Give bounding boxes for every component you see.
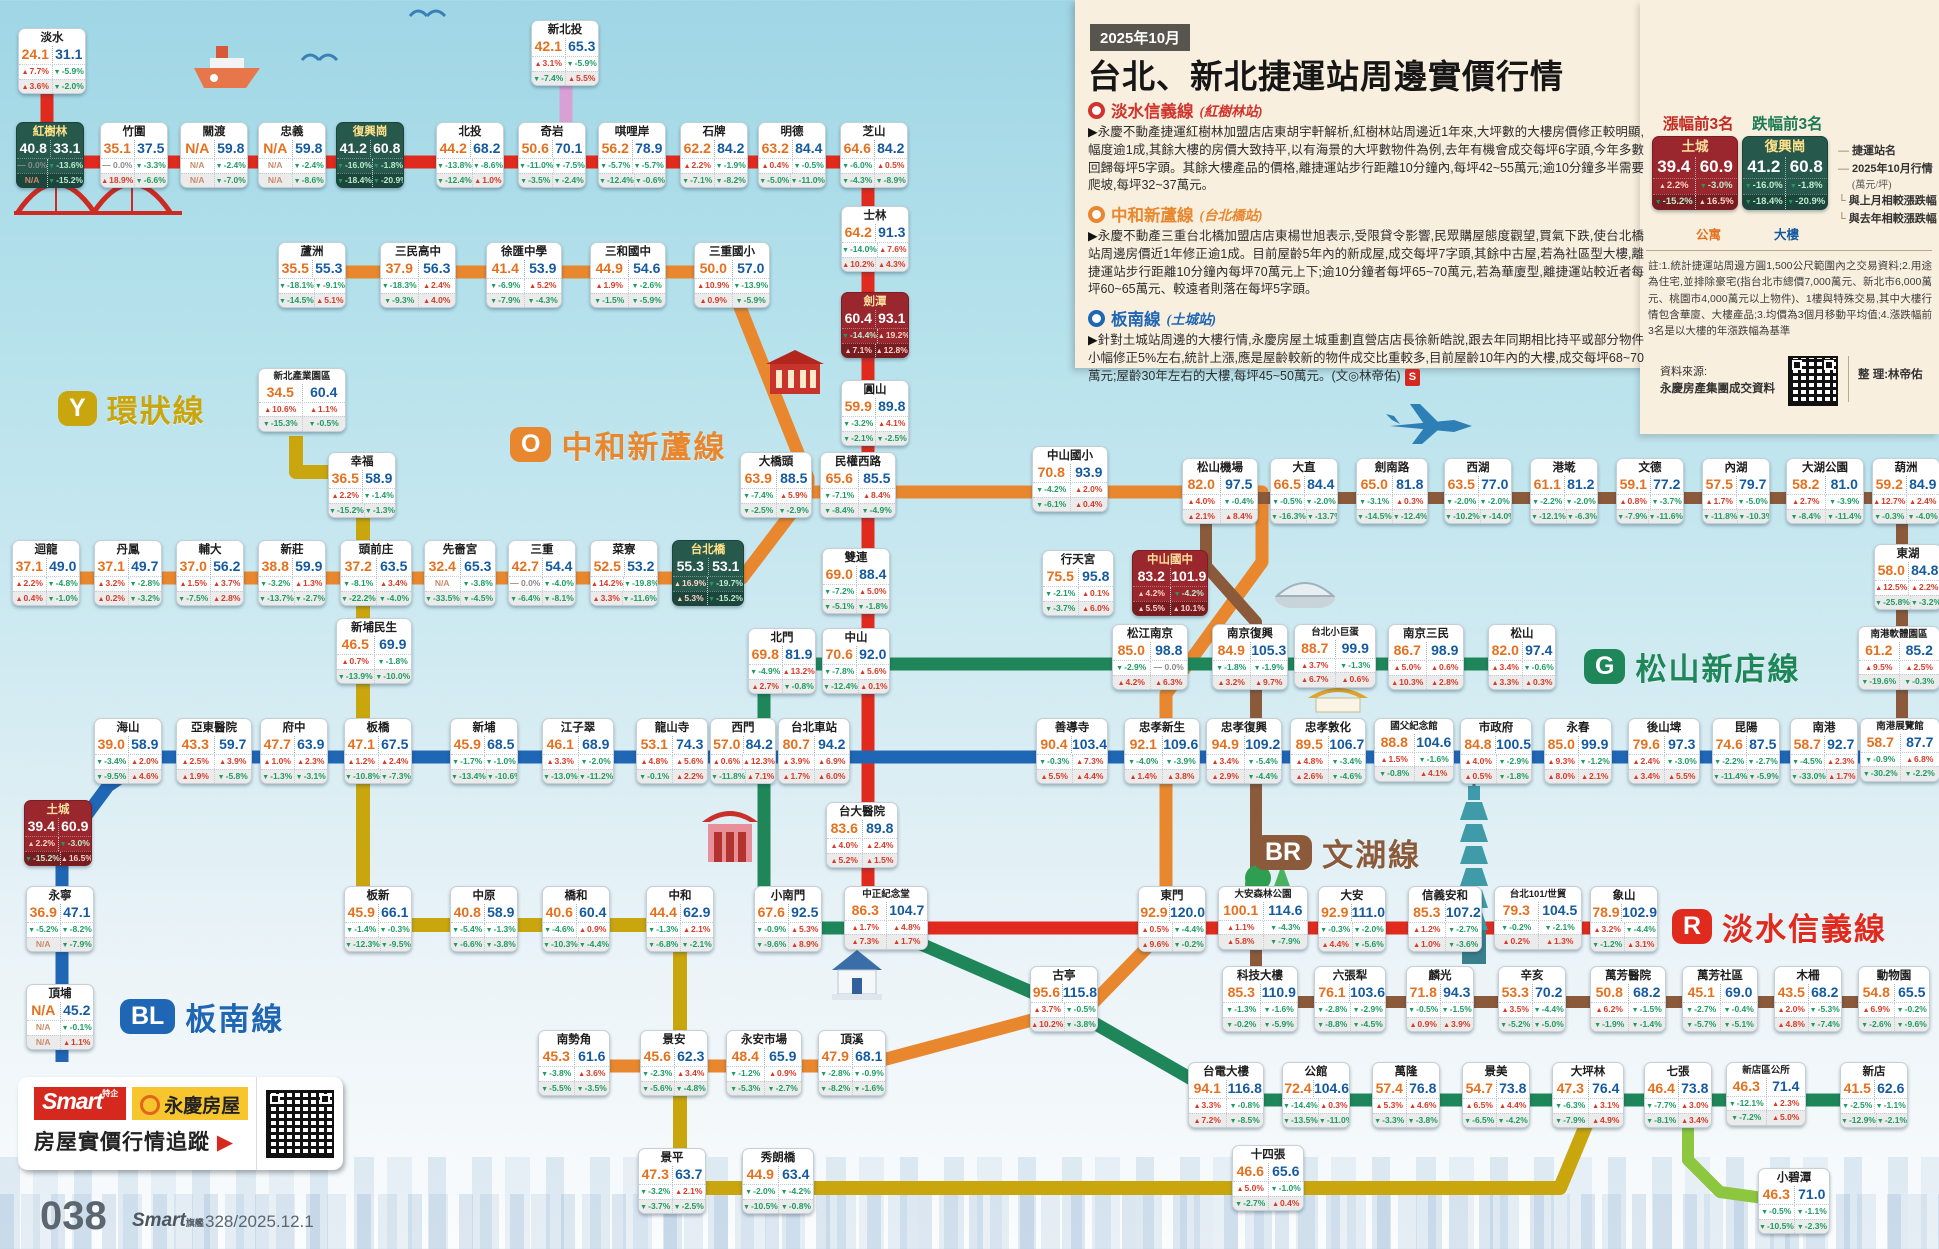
up-arrow-icon: ▲ [1413,927,1420,934]
station-萬隆: 萬隆57.476.8▲5.3%▲4.6%▼-3.3%▼-3.8% [1372,1062,1440,1128]
up-arrow-icon: ▲ [1906,665,1913,672]
down-arrow-icon: ▼ [1534,1007,1541,1014]
up-arrow-icon: ▲ [22,84,29,91]
down-arrow-icon: ▼ [1592,942,1599,949]
up-arrow-icon: ▲ [579,927,586,934]
station-景安: 景安45.662.3▼-2.3%▲3.4%▼-5.6%▼-4.8% [640,1030,708,1096]
up-arrow-icon: ▲ [1075,487,1082,494]
station-南港軟體園區: 南港軟體園區61.285.2▲9.5%▲2.5%▼-19.6%▼-0.3% [1858,626,1939,690]
section-zhonghe-xinlu: 中和新蘆線 (台北橋站) ▶永慶不動產三重台北橋加盟店店東楊世旭表示,受限貸令影… [1088,202,1644,299]
down-arrow-icon: ▼ [642,1086,649,1093]
down-arrow-icon: ▼ [842,333,849,340]
down-arrow-icon: ▼ [437,178,444,185]
up-arrow-icon: ▲ [1443,1022,1450,1029]
down-arrow-icon: ▼ [1264,1007,1271,1014]
up-arrow-icon: ▲ [842,262,849,269]
station-昆陽: 昆陽74.687.5▼-2.2%▼-2.7%▼-11.4%▼-5.9% [1712,718,1780,784]
down-arrow-icon: ▼ [486,759,493,766]
up-arrow-icon: ▲ [743,759,750,766]
down-arrow-icon: ▼ [555,163,562,170]
up-arrow-icon: ▲ [63,1040,70,1047]
down-arrow-icon: ▼ [451,774,458,781]
station-中山: 中山70.692.0▼-7.8%▲5.6%▼-12.4%▲0.1% [822,628,890,694]
station-動物園: 動物園54.865.5▲6.9%▼-0.2%▼-2.6%▼-9.6% [1858,966,1930,1032]
up-arrow-icon: ▲ [1227,939,1234,946]
sun-yat-sen-hall-icon [1306,684,1370,716]
down-arrow-icon: ▼ [1224,499,1231,506]
down-arrow-icon: ▼ [791,178,798,185]
up-arrow-icon: ▲ [1394,665,1401,672]
up-arrow-icon: ▲ [1376,1103,1383,1110]
station-葫洲: 葫洲59.284.9▲12.7%▲2.4%▼-0.3%▼-4.0% [1872,458,1939,524]
down-arrow-icon: ▼ [1498,1118,1505,1125]
line-badge-R: R [1672,909,1712,944]
station-中原: 中原40.858.9▼-5.4%▼-1.3%▼-6.6%▼-3.8% [450,886,518,952]
station-信義安和: 信義安和85.3107.2▲1.2%▼-2.7%▲1.0%▼-3.6% [1408,886,1482,952]
up-arrow-icon: ▲ [752,684,759,691]
station-東湖: 東湖58.084.8▲12.5%▲2.2%▼-25.8%▼-3.2% [1874,544,1939,610]
up-arrow-icon: ▲ [1909,499,1916,506]
up-arrow-icon: ▲ [1082,591,1089,598]
taipei-arena-icon [1272,568,1338,608]
arrow-icon: ▶ [217,1131,234,1154]
down-arrow-icon: ▼ [1306,499,1313,506]
down-arrow-icon: ▼ [1216,665,1223,672]
up-arrow-icon: ▲ [1322,942,1329,949]
down-arrow-icon: ▼ [1686,1022,1693,1029]
down-arrow-icon: ▼ [384,298,391,305]
down-arrow-icon: ▼ [1045,591,1052,598]
station-六張犁: 六張犁76.1103.6▼-2.8%▼-2.9%▼-8.8%▼-4.5% [1314,966,1386,1032]
up-arrow-icon: ▲ [264,759,271,766]
up-arrow-icon: ▲ [1681,1103,1688,1110]
down-arrow-icon: ▼ [1738,499,1745,506]
down-arrow-icon: ▼ [1703,514,1710,521]
station-南京復興: 南京復興84.9105.3▼-1.8%▼-1.9%▲3.2%▲9.7% [1212,624,1288,690]
down-arrow-icon: ▼ [1354,927,1361,934]
station-萬芳社區: 萬芳社區45.169.0▼-2.7%▼-0.4%▼-5.7%▼-5.1% [1682,966,1758,1032]
down-arrow-icon: ▼ [1566,499,1573,506]
station-景美: 景美54.773.8▲6.5%▲4.4%▼-6.5%▼-4.2% [1462,1062,1530,1128]
up-arrow-icon: ▲ [878,421,885,428]
down-arrow-icon: ▼ [510,596,517,603]
down-arrow-icon: ▼ [708,581,715,588]
up-arrow-icon: ▲ [591,581,598,588]
up-arrow-icon: ▲ [1633,759,1640,766]
station-十四張: 十四張46.665.6▲5.0%▼-1.0%▼-2.7%▲0.4% [1232,1145,1304,1211]
station-南港: 南港58.792.7▼-4.5%▲2.3%▼-33.0%▲1.7% [1790,718,1858,784]
legend-apartment: 公寓 [1696,224,1721,243]
down-arrow-icon: ▼ [623,596,630,603]
station-忠孝新生: 忠孝新生92.1109.6▼-4.0%▼-3.9%▲1.4%▲3.8% [1124,718,1200,784]
up-arrow-icon: ▲ [1212,774,1219,781]
down-arrow-icon: ▼ [711,774,718,781]
station-三民高中: 三民高中37.956.3▼-18.3%▲2.4%▼-9.3%▲4.0% [380,242,456,308]
down-arrow-icon: ▼ [648,942,655,949]
down-arrow-icon: ▼ [373,163,380,170]
down-arrow-icon: ▼ [1271,1186,1278,1193]
line-badge-G: G [1584,649,1625,684]
up-arrow-icon: ▲ [1212,759,1219,766]
station-台電大樓: 台電大樓94.1116.8▲3.3%▼-0.8%▲7.2%▼-8.5% [1188,1062,1264,1128]
down-arrow-icon: ▼ [784,684,791,691]
up-arrow-icon: ▲ [1706,499,1713,506]
up-arrow-icon: ▲ [1627,942,1634,949]
down-arrow-icon: ▼ [736,298,743,305]
station-中山國小: 中山國小70.893.9▼-4.2%▲2.0%▼-6.1%▲0.4% [1032,446,1108,512]
up-arrow-icon: ▲ [780,493,787,500]
down-arrow-icon: ▼ [1442,1007,1449,1014]
down-arrow-icon: ▼ [1646,1118,1653,1125]
footer-brand: Smart旗艦 [132,1210,204,1232]
down-arrow-icon: ▼ [544,927,551,934]
up-arrow-icon: ▲ [893,939,900,946]
down-arrow-icon: ▼ [294,163,301,170]
down-arrow-icon: ▼ [1248,774,1255,781]
up-arrow-icon: ▲ [1076,759,1083,766]
down-arrow-icon: ▼ [48,581,55,588]
station-頭前庄: 頭前庄37.263.5▼-8.1%▲3.4%▼-22.2%▼-4.0% [340,540,412,606]
station-板新: 板新45.966.1▼-1.4%▼-0.3%▼-12.3%▼-9.5% [344,886,412,952]
down-arrow-icon: ▼ [1379,771,1386,778]
legend-price: —2025年10月行情 [1838,160,1933,176]
up-arrow-icon: ▲ [568,76,575,83]
down-arrow-icon: ▼ [1861,679,1868,686]
down-arrow-icon: ▼ [1842,1103,1849,1110]
station-三重國小: 三重國小50.057.0▲10.9%▼-13.9%▲0.9%▼-5.9% [694,242,770,308]
down-arrow-icon: ▼ [1724,1007,1731,1014]
station-橋和: 橋和40.660.4▼-4.6%▲0.9%▼-10.3%▼-4.4% [542,886,610,952]
down-arrow-icon: ▼ [577,1086,584,1093]
up-arrow-icon: ▲ [1863,1007,1870,1014]
up-arrow-icon: ▲ [380,581,387,588]
down-arrow-icon: ▼ [28,927,35,934]
down-arrow-icon: ▼ [1248,759,1255,766]
down-arrow-icon: ▼ [745,1189,752,1196]
qr-code [1788,356,1838,406]
up-arrow-icon: ▲ [98,581,105,588]
down-arrow-icon: ▼ [60,841,67,848]
up-arrow-icon: ▲ [1525,680,1532,687]
down-arrow-icon: ▼ [824,589,831,596]
up-arrow-icon: ▲ [535,61,542,68]
up-arrow-icon: ▲ [1142,927,1149,934]
date-badge: 2025年10月 [1090,24,1190,51]
down-arrow-icon: ▼ [1791,774,1798,781]
cks-memorial-icon [824,948,890,1006]
down-arrow-icon: ▼ [1897,1007,1904,1014]
down-arrow-icon: ▼ [130,596,137,603]
up-arrow-icon: ▲ [1391,680,1398,687]
down-arrow-icon: ▼ [337,178,344,185]
station-奇岩: 奇岩50.670.1▼-11.0%▼-7.5%▼-3.5%▼-2.4% [518,122,586,188]
down-arrow-icon: ▼ [640,1189,647,1196]
down-arrow-icon: ▼ [96,774,103,781]
down-arrow-icon: ▼ [1166,759,1173,766]
down-arrow-icon: ▼ [543,774,550,781]
down-arrow-icon: ▼ [632,283,639,290]
station-三重: 三重42.754.4— 0.0%▼-4.0%▼-6.4%▼-8.1% [508,540,576,606]
down-arrow-icon: ▼ [1724,1022,1731,1029]
up-arrow-icon: ▲ [1194,1103,1201,1110]
station-府中: 府中47.763.9▲1.0%▲2.3%▼-1.3%▼-3.1% [260,718,328,784]
down-arrow-icon: ▼ [463,596,470,603]
station-永安市場: 永安市場48.465.9▼-1.2%▲0.9%▼-5.3%▼-2.7% [726,1030,802,1096]
down-arrow-icon: ▼ [579,774,586,781]
down-arrow-icon: ▼ [1580,759,1587,766]
down-arrow-icon: ▼ [794,163,801,170]
station-紅樹林: 紅樹林40.833.1— 0.0%▼-13.6%N/A▼-15.2% [16,122,84,188]
up-arrow-icon: ▲ [474,178,481,185]
down-arrow-icon: ▼ [1226,1007,1233,1014]
up-arrow-icon: ▲ [1865,665,1872,672]
up-arrow-icon: ▲ [852,925,859,932]
station-大坪林: 大坪林47.376.4▼-6.3%▲3.1%▼-7.9%▲4.9% [1552,1062,1624,1128]
down-arrow-icon: ▼ [1524,665,1531,672]
up-arrow-icon: ▲ [295,581,302,588]
up-arrow-icon: ▲ [423,298,430,305]
up-arrow-icon: ▲ [747,774,754,781]
down-arrow-icon: ▼ [743,1204,750,1211]
station-蘆洲: 蘆洲35.555.3▼-18.1%▼-9.1%▼-14.5%▲5.1% [278,242,346,308]
yungching-logo: 永慶房屋 [132,1087,248,1120]
up-arrow-icon: ▲ [180,581,187,588]
up-arrow-icon: ▲ [1301,663,1308,670]
down-arrow-icon: ▼ [381,774,388,781]
promo-qr-code [266,1090,334,1158]
station-北投: 北投44.268.2▼-13.8%▼-8.6%▼-12.4%▲1.0% [436,122,504,188]
line-label-BL: BL板南線 [120,994,284,1039]
up-arrow-icon: ▲ [1237,1186,1244,1193]
down-arrow-icon: ▼ [640,1204,647,1211]
station-頂溪: 頂溪47.968.1▼-2.8%▼-0.9%▼-8.2%▼-1.6% [818,1030,886,1096]
up-arrow-icon: ▲ [1502,1007,1509,1014]
footnote: 註:1.統計捷運站周邊方圓1,500公尺範圍內之交易資料;2.用途為住宅,並排除… [1648,258,1932,339]
up-arrow-icon: ▲ [1633,774,1640,781]
down-arrow-icon: ▼ [452,927,459,934]
down-arrow-icon: ▼ [338,674,345,681]
down-arrow-icon: ▼ [1713,774,1720,781]
down-arrow-icon: ▼ [1230,1118,1237,1125]
down-arrow-icon: ▼ [1036,502,1043,509]
down-arrow-icon: ▼ [1499,759,1506,766]
down-arrow-icon: ▼ [1039,759,1046,766]
down-arrow-icon: ▼ [733,283,740,290]
down-arrow-icon: ▼ [1729,1101,1736,1108]
down-arrow-icon: ▼ [820,1086,827,1093]
bird-icon [300,48,340,64]
up-arrow-icon: ▲ [1668,774,1675,781]
down-arrow-icon: ▼ [779,508,786,515]
down-arrow-icon: ▼ [743,493,750,500]
up-arrow-icon: ▲ [684,163,691,170]
legend-month-change: └與上月相較漲跌幅 [1838,192,1937,208]
line-label-Y: Y環狀線 [58,386,206,431]
down-arrow-icon: ▼ [520,178,527,185]
up-arrow-icon: ▲ [529,283,536,290]
down-arrow-icon: ▼ [1877,1118,1884,1125]
down-arrow-icon: ▼ [1501,925,1508,932]
down-arrow-icon: ▼ [1759,1224,1766,1231]
down-arrow-icon: ▼ [1317,1022,1324,1029]
down-arrow-icon: ▼ [1353,1007,1360,1014]
down-arrow-icon: ▼ [382,283,389,290]
down-arrow-icon: ▼ [1464,1118,1471,1125]
editor-credit: 整 理:林帝佑 [1858,366,1923,382]
down-arrow-icon: ▼ [315,283,322,290]
up-arrow-icon: ▲ [762,163,769,170]
legend-station-name: —捷運站名 [1838,142,1896,158]
up-arrow-icon: ▲ [1075,502,1082,509]
station-劍潭: 劍潭60.493.1▼-14.4%▲19.2%▲7.1%▲12.8% [841,292,909,358]
down-arrow-icon: ▼ [1745,183,1752,190]
down-arrow-icon: ▼ [1235,1201,1242,1208]
down-arrow-icon: ▼ [345,942,352,949]
up-arrow-icon: ▲ [1592,1118,1599,1125]
line-bullet-icon [1088,206,1105,223]
down-arrow-icon: ▼ [380,927,387,934]
down-arrow-icon: ▼ [130,581,137,588]
up-arrow-icon: ▲ [1466,1103,1473,1110]
down-arrow-icon: ▼ [1731,1115,1738,1122]
down-arrow-icon: ▼ [648,927,655,934]
station-西湖: 西湖63.577.0▼-2.0%▼-2.0%▼-10.2%▼-14.0% [1444,458,1512,524]
station-辛亥: 辛亥53.370.2▲3.5%▼-4.4%▼-5.2%▼-5.0% [1498,966,1566,1032]
station-萬芳醫院: 萬芳醫院50.868.2▲6.2%▼-1.5%▼-1.9%▼-1.4% [1590,966,1666,1032]
station-復興崗: 復興崗41.260.8▼-16.0%▼-1.8%▼-18.4%▼-20.9% [1742,136,1828,210]
down-arrow-icon: ▼ [1481,514,1488,521]
up-arrow-icon: ▲ [1130,774,1137,781]
station-關渡: 關渡N/A59.8N/A▼-2.4%N/A▼-7.0% [180,122,248,188]
station-中山國中: 中山國中83.2101.9▲4.2%▼-4.2%▲5.5%▲10.1% [1132,550,1208,616]
down-arrow-icon: ▼ [309,421,316,428]
up-arrow-icon: ▲ [713,759,720,766]
down-arrow-icon: ▼ [682,942,689,949]
down-arrow-icon: ▼ [674,1204,681,1211]
bird-icon [408,4,448,20]
down-arrow-icon: ▼ [862,508,869,515]
down-arrow-icon: ▼ [1908,514,1915,521]
station-中和: 中和44.462.9▼-1.3%▲2.1%▼-6.8%▼-2.1% [646,886,714,952]
rank-down-label: 跌幅前3名 [1752,112,1823,134]
section-tamsui-xinyi: 淡水信義線 (紅樹林站) ▶永慶不動產捷運紅樹林加盟店店東胡宇軒解析,紅樹林站周… [1088,98,1644,195]
down-arrow-icon: ▼ [1499,774,1506,781]
station-台北小巨蛋: 台北小巨蛋88.799.9▲3.7%▼-1.3%▲6.7%▲0.6% [1294,624,1376,688]
down-arrow-icon: ▼ [1332,759,1339,766]
down-arrow-icon: ▼ [544,596,551,603]
down-arrow-icon: ▼ [425,596,432,603]
station-新北投: 新北投42.165.3▲3.1%▼-5.9%▼-7.4%▲5.5% [531,20,599,86]
station-龍山寺: 龍山寺53.174.3▲4.8%▲5.6%▼-0.1%▲2.2% [636,718,708,784]
down-arrow-icon: ▼ [1340,663,1347,670]
down-arrow-icon: ▼ [1534,1022,1541,1029]
down-arrow-icon: ▼ [1066,1022,1073,1029]
down-arrow-icon: ▼ [1448,927,1455,934]
down-arrow-icon: ▼ [1307,514,1314,521]
station-新埔民生: 新埔民生46.569.9▲0.7%▼-1.8%▼-13.9%▼-10.0% [336,618,412,684]
down-arrow-icon: ▼ [1686,1007,1693,1014]
down-arrow-icon: ▼ [1226,1022,1233,1029]
up-arrow-icon: ▲ [1548,759,1555,766]
up-arrow-icon: ▲ [1413,942,1420,949]
station-頂埔: 頂埔N/A45.2N/A▼-0.1%N/A▲1.1% [26,984,94,1050]
down-arrow-icon: ▼ [178,596,185,603]
down-arrow-icon: ▼ [279,283,286,290]
down-arrow-icon: ▼ [1790,183,1797,190]
up-arrow-icon: ▲ [1827,759,1834,766]
down-arrow-icon: ▼ [1829,499,1836,506]
down-arrow-icon: ▼ [1861,1022,1868,1029]
down-arrow-icon: ▼ [543,942,550,949]
down-arrow-icon: ▼ [823,684,830,691]
data-source: 資料來源:永慶房產集團成交資料 [1660,364,1775,398]
station-徐匯中學: 徐匯中學41.453.9▼-6.9%▲5.2%▼-7.9%▼-4.3% [486,242,562,308]
up-arrow-icon: ▲ [1596,1007,1603,1014]
down-arrow-icon: ▼ [1320,927,1327,934]
up-arrow-icon: ▲ [593,596,600,603]
down-arrow-icon: ▼ [1419,757,1426,764]
up-arrow-icon: ▲ [1778,1007,1785,1014]
down-arrow-icon: ▼ [730,1071,737,1078]
station-新店區公所: 新店區公所46.371.4▼-12.1%▲2.3%▼-7.2%▲5.0% [1726,1062,1806,1126]
down-arrow-icon: ▼ [1045,606,1052,613]
down-arrow-icon: ▼ [1594,1022,1601,1029]
down-arrow-icon: ▼ [554,178,561,185]
line-commentary: 淡水信義線 (紅樹林站) ▶永慶不動產捷運紅樹林加盟店店東胡宇軒解析,紅樹林站周… [1088,98,1644,393]
station-忠義: 忠義N/A59.8N/A▼-2.4%N/A▼-8.6% [258,122,326,188]
up-arrow-icon: ▲ [1138,606,1145,613]
up-arrow-icon: ▲ [859,589,866,596]
down-arrow-icon: ▼ [490,283,497,290]
up-arrow-icon: ▲ [1272,1201,1279,1208]
down-arrow-icon: ▼ [1797,1224,1804,1231]
down-arrow-icon: ▼ [1626,927,1633,934]
station-南勢角: 南勢角45.361.6▼-3.8%▲3.6%▼-5.5%▼-3.5% [538,1030,610,1096]
up-arrow-icon: ▲ [878,333,885,340]
station-國父紀念館: 國父紀念館88.8104.6▲1.5%▼-1.6%▼-0.8%▲4.1% [1374,718,1454,782]
down-arrow-icon: ▼ [1332,774,1339,781]
down-arrow-icon: ▼ [452,759,459,766]
station-科技大樓: 科技大樓85.3110.9▼-1.3%▼-1.6%▼-0.2%▼-5.9% [1222,966,1298,1032]
up-arrow-icon: ▲ [1594,927,1601,934]
down-arrow-icon: ▼ [1359,499,1366,506]
up-arrow-icon: ▲ [1431,665,1438,672]
station-台北101/世貿: 台北101/世貿79.3104.5▼-0.2%▼-2.1%▲0.2%▲1.3% [1494,886,1582,950]
editor-divider [1848,356,1849,402]
station-先嗇宮: 先嗇宮32.465.3N/A▼-3.8%▼-33.5%▼-4.5% [424,540,496,606]
down-arrow-icon: ▼ [1408,1007,1415,1014]
up-arrow-icon: ▲ [677,1071,684,1078]
down-arrow-icon: ▼ [1810,1007,1817,1014]
down-arrow-icon: ▼ [768,1086,775,1093]
down-arrow-icon: ▼ [750,669,757,676]
down-arrow-icon: ▼ [1272,499,1279,506]
down-arrow-icon: ▼ [1745,199,1752,206]
station-新埔: 新埔45.968.5▼-1.7%▼-1.0%▼-13.4%▼-10.6% [450,718,518,784]
down-arrow-icon: ▼ [842,178,849,185]
down-arrow-icon: ▼ [1446,499,1453,506]
up-arrow-icon: ▲ [1255,680,1262,687]
down-arrow-icon: ▼ [877,436,884,443]
up-arrow-icon: ▲ [1396,499,1403,506]
down-arrow-icon: ▼ [842,163,849,170]
station-台北橋: 台北橋55.353.1▲16.9%▼-19.7%▲5.3%▼-15.2% [672,540,744,606]
down-arrow-icon: ▼ [824,508,831,515]
down-arrow-icon: ▼ [486,942,493,949]
up-arrow-icon: ▲ [16,581,23,588]
smart-s-logo: S [1405,369,1420,387]
up-arrow-icon: ▲ [213,596,220,603]
